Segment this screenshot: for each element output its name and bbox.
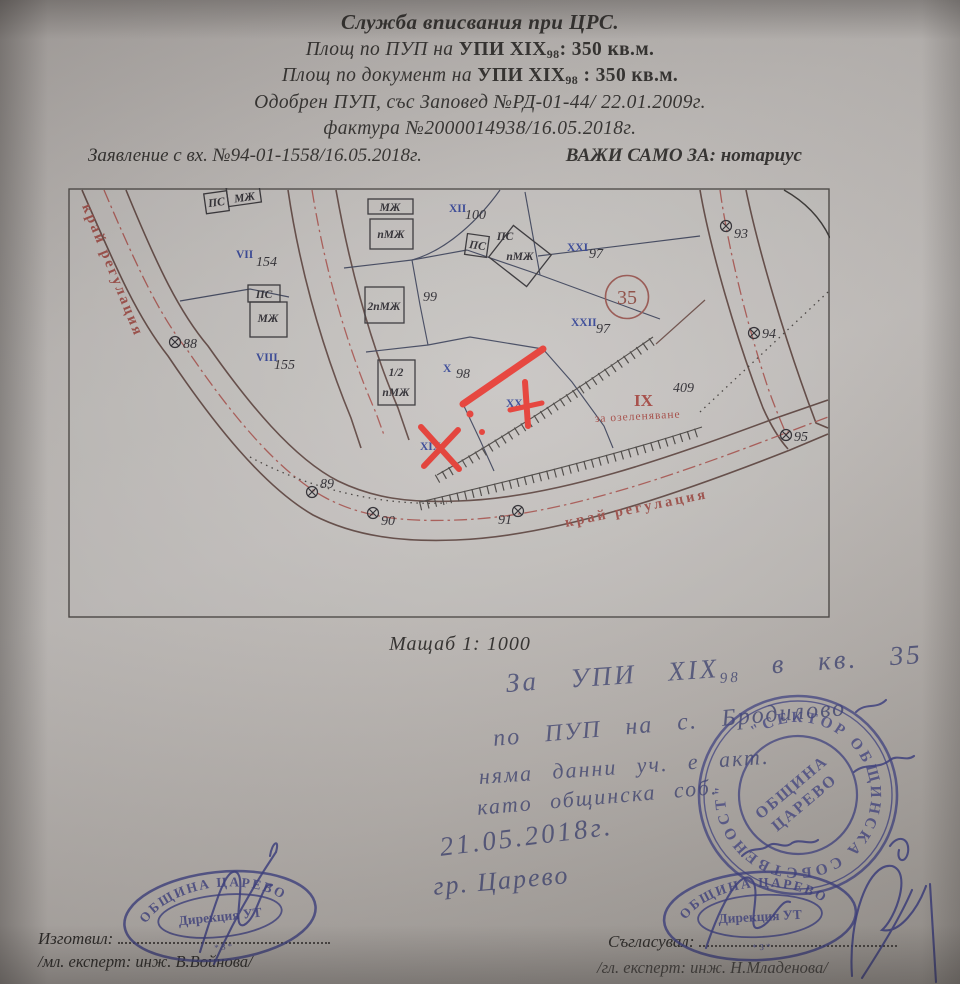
round-stamp-center-2: ЦАРЕВО [769,771,841,835]
area-doc-sub: 98 [565,73,578,87]
point-label: 94 [762,327,776,342]
quarter-number: 35 [617,287,637,309]
footer-left: Изготвил: [38,928,330,949]
plot-roman: XXII [571,317,597,329]
header-application-row: Заявление с вх. №94-01-1558/16.05.2018г.… [0,143,960,169]
point-label: 90 [381,514,395,529]
application-number: Заявление с вх. №94-01-1558/16.05.2018г. [88,143,422,169]
handwriting-fragment-2 [854,756,914,772]
header-order: Одобрен ПУП, със Заповед №РД-01-44/ 22.0… [0,90,960,117]
handwritten-date: 21.05.2018г. [438,811,615,863]
header-area-doc: Площ по документ на УПИ XIX98 : 350 кв.м… [0,63,960,90]
scanned-document: Служба вписвания при ЦРС. Площ по ПУП на… [0,0,960,984]
plot-number: 97 [589,247,604,262]
oval-stamp-top-text: ОБЩИНА ЦАРЕВО [133,868,292,927]
handwritten-line-2: по ПУП на с. Бродилово [492,695,847,753]
area-doc-value: : 350 кв.м. [578,65,678,86]
area-doc-plot: УПИ XIX [477,65,565,86]
area-pup-prefix: Площ по ПУП на [306,39,459,60]
green-zone-roman: IX [634,391,654,410]
building-label: ПС [496,231,514,243]
building-label: ПС [467,239,486,253]
building-label: 2пМЖ [367,301,401,313]
header-area-pup: Площ по ПУП на УПИ XIX98: 350 кв.м. [0,37,960,64]
approved-by-label: Съгласувал: [608,932,695,951]
signature-dotted-line [699,931,897,947]
building-label: МЖ [379,202,401,214]
oval-stamp-center-text: Дирекция УТ [178,905,263,929]
plot-number: 154 [256,255,277,270]
handwriting-fragment-3 [856,700,886,712]
area-pup-plot: УПИ XIX [459,39,547,60]
plot-roman: X [443,363,452,375]
header-invoice: фактура №2000014938/16.05.2018г. [0,116,960,143]
plot-number: 100 [465,208,486,223]
point-label: 95 [794,430,808,445]
point-label: 93 [734,227,748,242]
signature-dotted-line [118,928,330,944]
valid-for-note: ВАЖИ САМО ЗА: нотариус [566,143,802,169]
pen-line-right [930,884,936,982]
building-label: ПС [207,196,226,210]
building-label: 1/2 [389,367,404,379]
plot-roman: XXI [567,242,589,254]
oval-stamp-top-text: ОБЩИНА ЦАРЕВО [675,871,832,922]
plot-number: 97 [596,322,611,337]
building-label: пМЖ [506,251,534,263]
map-scale: Мащаб 1: 1000 [330,633,590,656]
handwriting-fragment [890,839,908,860]
plot-number-409: 409 [673,381,694,396]
point-label: 88 [183,337,197,352]
point-label: 91 [498,513,512,528]
document-header: Служба вписвания при ЦРС. Площ по ПУП на… [0,8,960,168]
hw-plot-sub: 98 [719,670,741,687]
plot-number: 98 [456,367,470,382]
footer-right: Съгласувал: [608,931,897,952]
map-paper [68,188,830,618]
building-label: ПС [255,289,273,301]
building-label: МЖ [257,313,279,325]
area-pup-value: : 350 кв.м. [560,39,655,60]
handwriting-over-stamp [742,840,818,856]
building-label: пМЖ [377,229,405,241]
hw-quarter: в кв. 35 [739,639,924,682]
plot-number: 155 [274,358,295,373]
plot-number-99: 99 [423,290,437,305]
plot-roman: VII [236,249,254,261]
oval-stamp-center-text: Дирекция УТ [718,907,802,926]
header-title: Служба вписвания при ЦРС. [0,8,960,37]
prepared-by-name: /мл. експерт: инж. В.Войнова/ [38,952,253,972]
signature-far-right [851,866,926,976]
prepared-by-label: Изготвил: [38,929,113,948]
cadastral-map: ПС МЖ МЖ пМЖ ПС МЖ 2пМЖ 1/2 пМЖ ПС пМЖ П… [68,188,830,618]
approved-by-name: /гл. експерт: инж. Н.Младенова/ [597,958,828,978]
hw-plot: За УПИ XIX [505,653,720,698]
point-label: 89 [320,477,334,492]
area-doc-prefix: Площ по документ на [282,65,477,86]
building-label: пМЖ [382,387,410,399]
handwritten-city: гр. Царево [432,860,571,902]
area-pup-sub: 98 [547,47,560,61]
